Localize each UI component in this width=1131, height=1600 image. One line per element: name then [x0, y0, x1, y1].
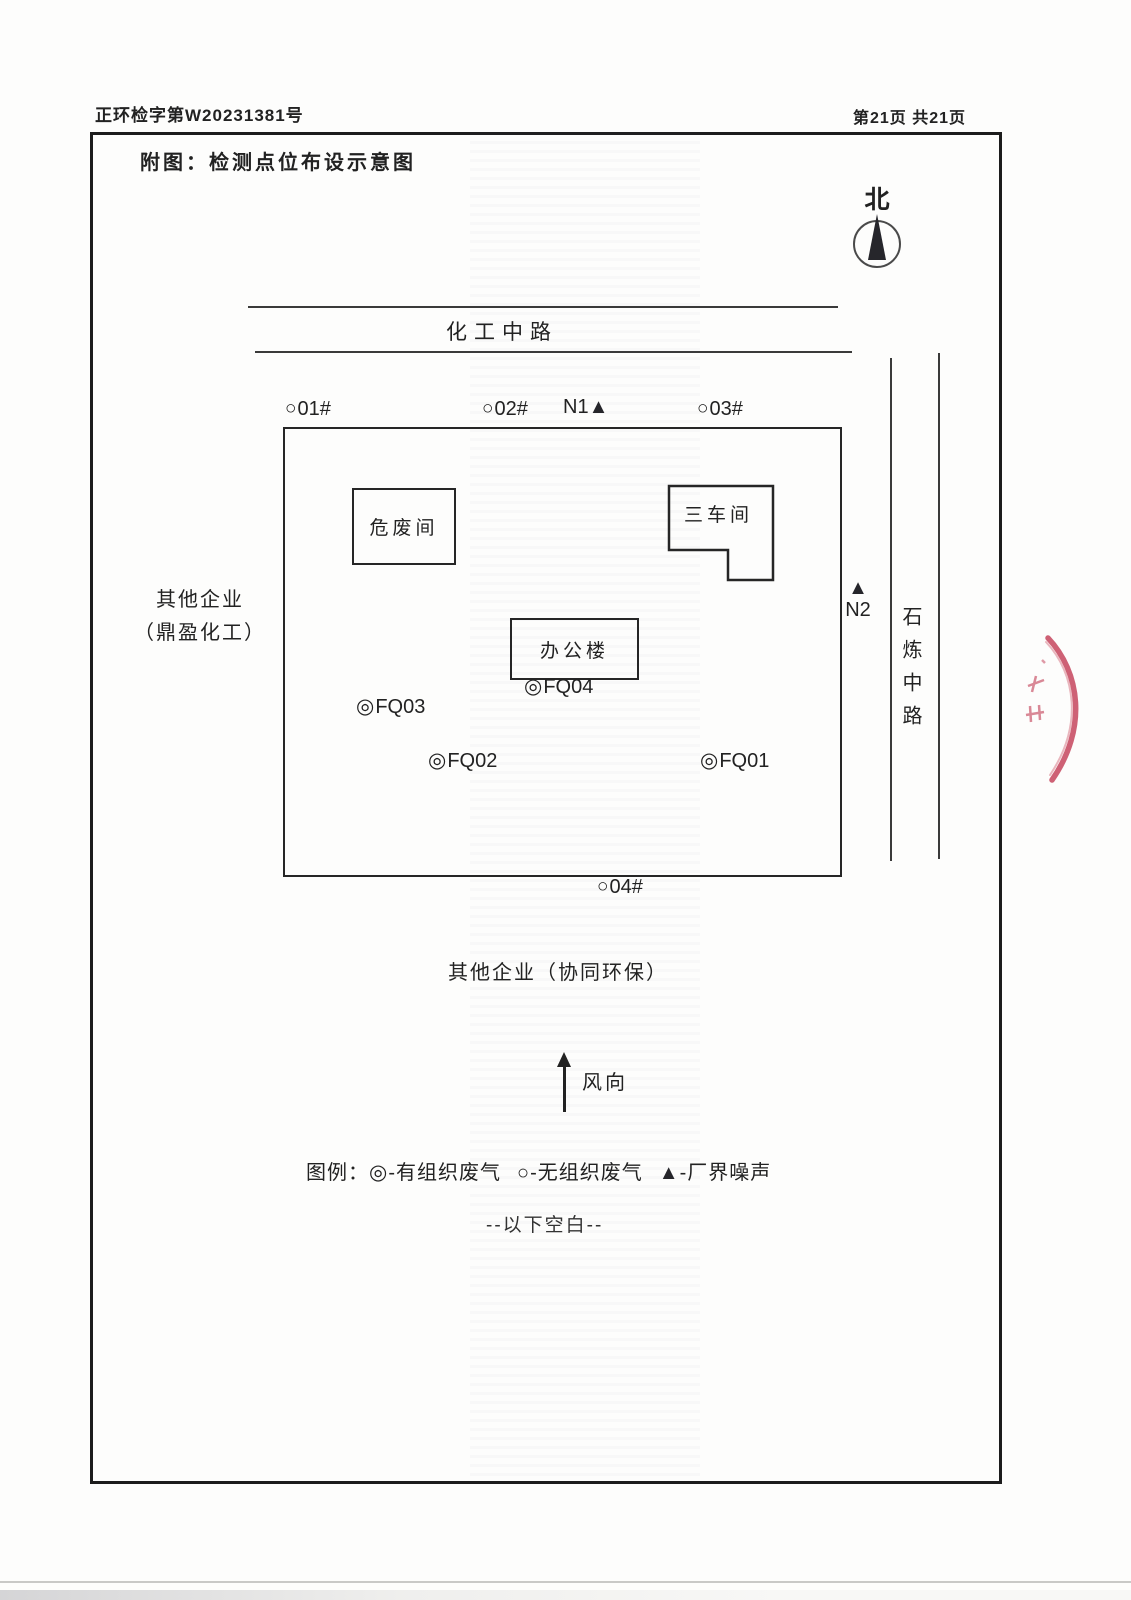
wind-label: 风向 — [582, 1066, 628, 1095]
point-04: ○04# — [597, 876, 643, 899]
organized-gas-icon: ◎ — [356, 695, 374, 718]
road-top-label: 化工中路 — [446, 316, 558, 346]
monitor-fq04-label: FQ04 — [543, 676, 593, 698]
noise-point-n1: N1▲ — [563, 396, 608, 419]
neighbor-left-line2: （鼎盈化工） — [116, 617, 284, 650]
building-hazardous-waste-room-label: 危废间 — [369, 513, 438, 540]
organized-gas-icon: ◎ — [369, 1161, 388, 1184]
legend-unorganized-label: -无组织废气 — [530, 1162, 643, 1184]
neighbor-left-line1: 其他企业 — [116, 584, 284, 617]
noise-point-n1-label: N1 — [563, 396, 589, 418]
building-workshop-3 — [664, 481, 778, 585]
organized-gas-icon: ◎ — [700, 749, 718, 772]
boundary-noise-icon: ▲ — [589, 396, 609, 418]
noise-point-n2: ▲ N2 — [838, 578, 878, 622]
unorganized-gas-icon: ○ — [697, 398, 708, 419]
doc-number: 正环检字第W20231381号 — [95, 101, 304, 126]
road-right-label: 石炼中路 — [896, 606, 925, 738]
neighbor-bottom: 其他企业（协同环保） — [448, 956, 668, 985]
boundary-noise-icon: ▲ — [838, 578, 878, 598]
compass-icon — [853, 220, 901, 268]
point-02: ○02# — [482, 398, 528, 421]
boundary-noise-icon: ▲ — [659, 1162, 680, 1184]
organized-gas-icon: ◎ — [524, 675, 542, 698]
monitor-fq03: ◎FQ03 — [356, 694, 425, 719]
point-03: ○03# — [697, 398, 743, 421]
point-04-label: 04# — [609, 876, 642, 898]
monitor-fq03-label: FQ03 — [375, 696, 425, 718]
scan-bottom-shadow — [0, 1590, 1131, 1600]
scanned-page: 正环检字第W20231381号 第21页 共21页 附图：检测点位布设示意图 北… — [0, 0, 1131, 1600]
point-03-label: 03# — [709, 398, 742, 420]
stamp-icon — [1006, 620, 1101, 795]
road-right-inner-line — [890, 358, 892, 861]
point-01-label: 01# — [297, 398, 330, 420]
building-office-label: 办公楼 — [540, 636, 609, 663]
noise-point-n2-label: N2 — [838, 598, 878, 622]
scan-bottom-edge — [0, 1581, 1131, 1583]
north-label: 北 — [845, 180, 909, 216]
legend-noise-label: -厂界噪声 — [680, 1162, 772, 1184]
monitor-fq01: ◎FQ01 — [700, 748, 769, 773]
north-needle-icon — [868, 214, 886, 260]
point-02-label: 02# — [494, 398, 527, 420]
legend-prefix: 图例： — [306, 1162, 369, 1184]
neighbor-left: 其他企业 （鼎盈化工） — [116, 584, 284, 650]
unorganized-gas-icon: ○ — [517, 1162, 530, 1184]
legend: 图例：◎-有组织废气○-无组织废气▲-厂界噪声 — [306, 1156, 771, 1185]
page-title: 附图：检测点位布设示意图 — [140, 146, 416, 175]
road-right-outer-line — [938, 353, 940, 859]
below-blank-note: --以下空白-- — [486, 1210, 603, 1237]
building-office: 办公楼 — [510, 618, 639, 680]
monitor-fq01-label: FQ01 — [719, 750, 769, 772]
unorganized-gas-icon: ○ — [285, 398, 296, 419]
building-hazardous-waste-room: 危废间 — [352, 488, 456, 565]
monitor-fq02: ◎FQ02 — [428, 748, 497, 773]
road-top-lower-line — [255, 351, 852, 353]
unorganized-gas-icon: ○ — [597, 876, 608, 897]
page-indicator: 第21页 共21页 — [853, 104, 966, 128]
north-compass: 北 — [845, 180, 909, 268]
wind-arrow-line — [563, 1064, 566, 1112]
point-01: ○01# — [285, 398, 331, 421]
building-workshop-3-label: 三车间 — [684, 500, 753, 527]
unorganized-gas-icon: ○ — [482, 398, 493, 419]
monitor-fq04: ◎FQ04 — [524, 674, 593, 699]
road-top-upper-line — [248, 306, 838, 308]
legend-organized-label: -有组织废气 — [388, 1162, 501, 1184]
monitor-fq02-label: FQ02 — [447, 750, 497, 772]
organized-gas-icon: ◎ — [428, 749, 446, 772]
